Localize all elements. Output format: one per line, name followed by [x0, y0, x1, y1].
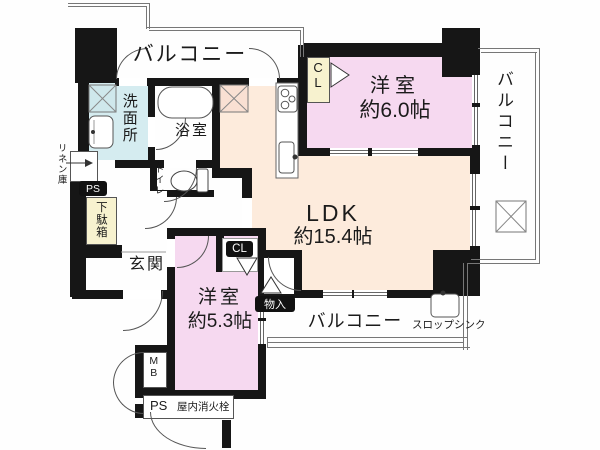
storage-badge: 物入: [255, 296, 295, 312]
fire-hydrant-label: 屋内消火栓: [177, 402, 230, 414]
slop-sink-icon: [431, 294, 459, 317]
bedroom-large-name: 洋室: [340, 75, 450, 97]
linen-closet-label: リネン庫: [55, 143, 66, 195]
shoe-cabinet-label: 下駄箱: [94, 201, 107, 243]
bedroom-small-area: 約5.3帖: [174, 311, 266, 332]
bathtub-icon: [158, 87, 213, 118]
entrance-label: 玄関: [124, 256, 170, 274]
ldk-name: LDK: [288, 201, 378, 227]
kitchen-sink-icon: [279, 142, 294, 173]
ps-lower-label: PS: [150, 399, 167, 414]
balcony-top-label: バルコニー: [128, 43, 252, 67]
ps-upper-badge: PS: [79, 181, 107, 196]
balcony-bottom-label: バルコニー: [300, 311, 410, 331]
balcony-right-label: バルコニー: [494, 70, 513, 200]
linen-arrow-icon: [85, 159, 93, 167]
ldk-area: 約15.4帖: [278, 226, 388, 248]
floor-plan: バルコニー バルコニー バルコニー 洗面所 浴室 トイレ リネン庫 PS 下駄箱…: [0, 0, 600, 450]
folding-door-icon: [237, 258, 257, 275]
toilet-label: トイレ: [152, 164, 163, 212]
bathroom-label: 浴室: [169, 123, 215, 140]
meter-box-label: MB: [147, 355, 159, 387]
kitchen-faucet-icon: [293, 155, 298, 160]
closet-upper-label: CL: [310, 60, 325, 102]
washroom-label: 洗面所: [120, 93, 137, 153]
slop-sink-faucet-icon: [441, 291, 446, 296]
bedroom-small-name: 洋室: [180, 287, 260, 308]
toilet-icon: [197, 169, 208, 192]
slop-sink-label: スロップシンク: [412, 320, 486, 332]
bedroom-large-area: 約6.0帖: [338, 99, 452, 123]
closet-lower-badge: CL: [226, 241, 253, 257]
vanity-faucet-icon: [91, 130, 95, 134]
